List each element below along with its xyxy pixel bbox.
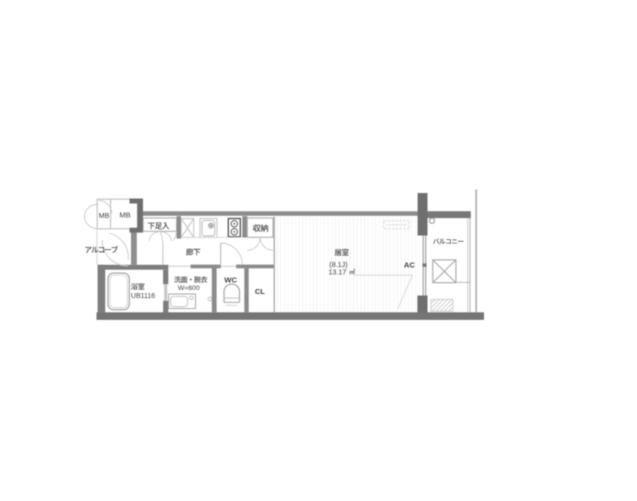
svg-text:UB1116: UB1116 <box>131 293 155 300</box>
svg-text:W=600: W=600 <box>178 285 200 292</box>
svg-text:AC: AC <box>404 261 415 270</box>
svg-text:WC: WC <box>224 275 237 284</box>
svg-text:CL: CL <box>255 287 265 296</box>
svg-text:13.17: 13.17 <box>328 267 346 276</box>
svg-text:MB: MB <box>120 211 131 220</box>
svg-text:MB: MB <box>99 213 110 220</box>
